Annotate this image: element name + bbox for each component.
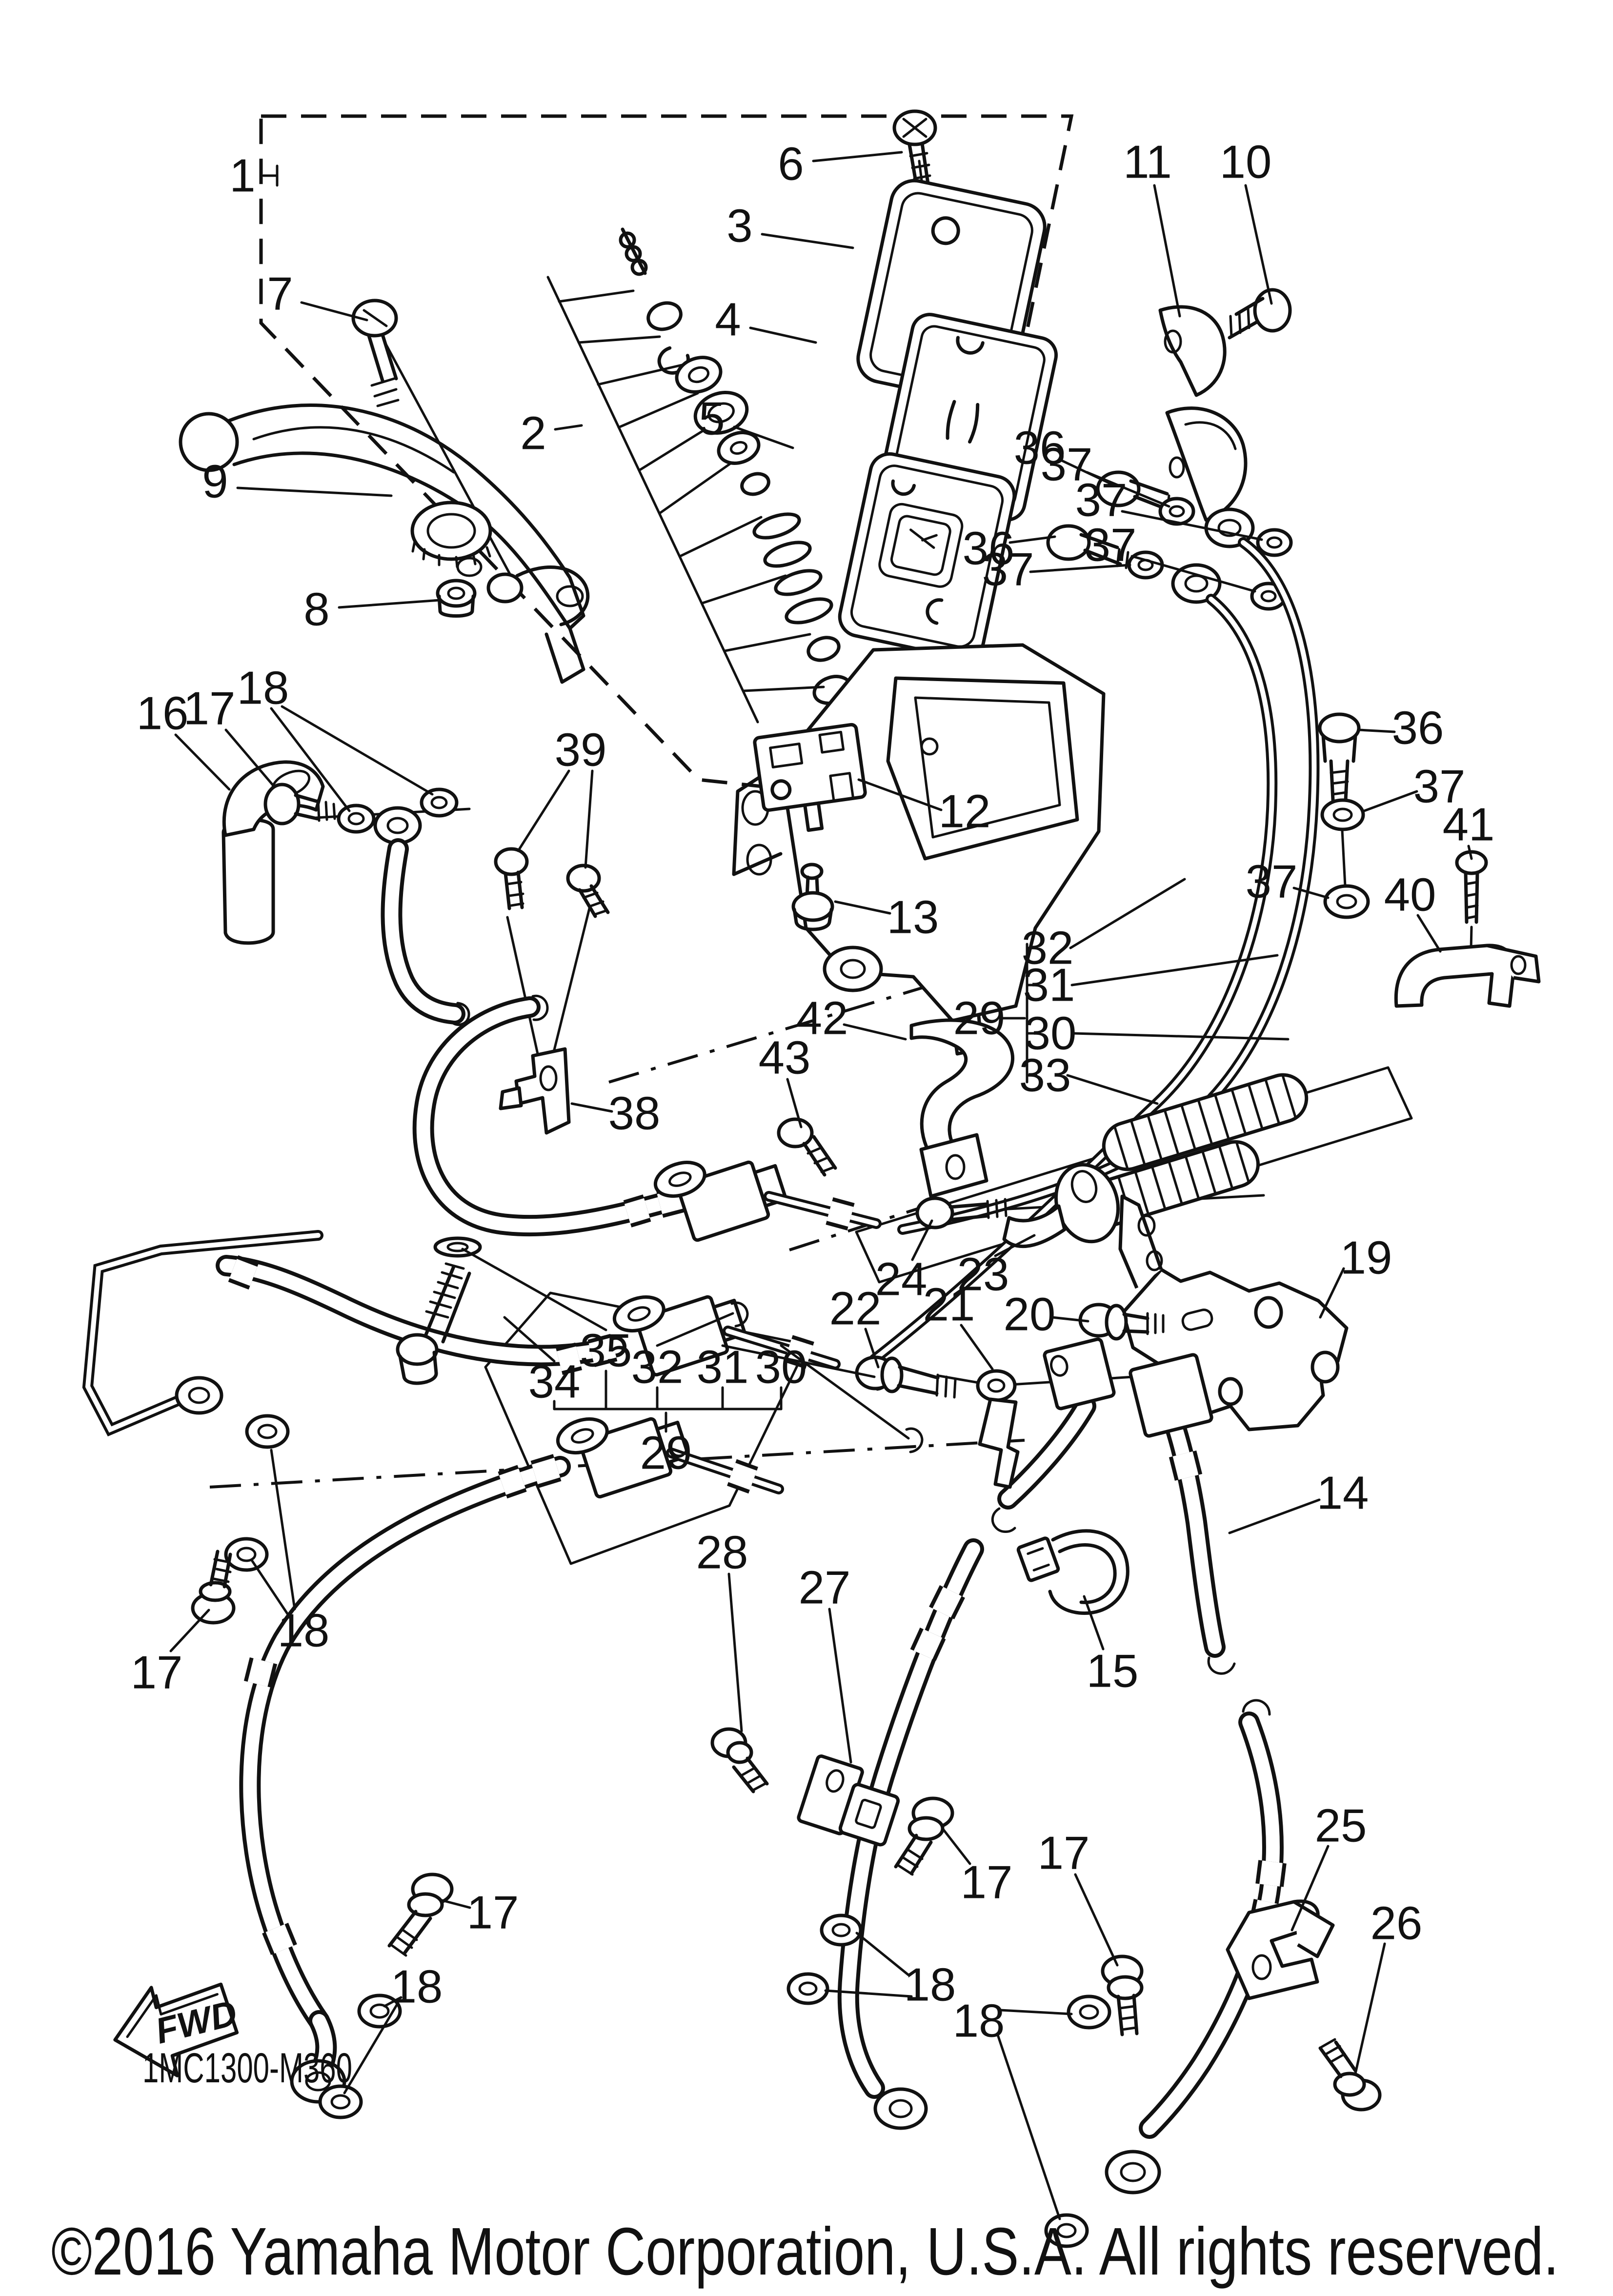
- screws-39: [496, 849, 608, 916]
- callout-label-32: 32: [631, 1341, 684, 1393]
- handlebar-clamp: [1160, 307, 1246, 520]
- callout-label-35: 35: [580, 1325, 632, 1377]
- callout-label-17: 17: [183, 683, 236, 735]
- callout-label-37: 37: [982, 544, 1034, 596]
- leader-line: [442, 1900, 470, 1908]
- hose-14: [1107, 1417, 1273, 2193]
- leader-line: [1072, 955, 1277, 985]
- callout-label-41: 41: [1443, 799, 1495, 851]
- callout-label-1: 1: [229, 150, 255, 202]
- callout-label-30: 30: [755, 1341, 807, 1393]
- callout-label-3: 3: [726, 200, 752, 252]
- callout-label-17: 17: [467, 1887, 519, 1939]
- callout-label-32: 32: [1022, 922, 1074, 974]
- copyright: ©2016 Yamaha Motor Corporation, U.S.A. A…: [51, 2214, 1559, 2289]
- leader-line: [844, 1025, 906, 1039]
- leader-line: [463, 1249, 606, 1330]
- washers-18a: [339, 789, 457, 843]
- callout-label-13: 13: [887, 891, 939, 944]
- bolt-17c: [389, 1874, 452, 1955]
- piston-kit: [548, 229, 854, 722]
- callout-label-17: 17: [131, 1647, 183, 1699]
- clamp-38: [501, 1049, 569, 1133]
- callout-label-29: 29: [640, 1427, 692, 1479]
- leader-line: [1364, 791, 1417, 811]
- leader-line: [961, 1325, 992, 1369]
- lever-nut-8: [438, 581, 475, 616]
- callout-label-20: 20: [1004, 1289, 1056, 1341]
- callout-label-7: 7: [267, 268, 293, 320]
- callout-label-36: 36: [1392, 702, 1444, 754]
- callout-label-9: 9: [202, 456, 228, 508]
- callout-label-18: 18: [237, 662, 289, 714]
- leader-line: [271, 1450, 295, 1609]
- leader-line: [171, 1610, 209, 1651]
- leader-line: [997, 2034, 1060, 2219]
- bolt-43: [779, 1119, 835, 1175]
- leader-line: [750, 328, 816, 342]
- leader-line: [1070, 879, 1185, 948]
- fwd-label: FWD: [151, 1992, 241, 2051]
- callout-label-28: 28: [696, 1527, 748, 1579]
- callout-label-10: 10: [1220, 136, 1272, 188]
- callout-label-18: 18: [278, 1605, 330, 1657]
- callout-label-2: 2: [520, 407, 546, 460]
- callout-label-27: 27: [799, 1562, 851, 1614]
- callout-label-12: 12: [939, 785, 991, 838]
- clamp-25: [1228, 1901, 1333, 1998]
- leader-line: [1068, 1075, 1157, 1104]
- footer: 1MC1300-M360 ©2016 Yamaha Motor Corporat…: [51, 2045, 1559, 2289]
- callout-label-18: 18: [391, 1961, 443, 2013]
- leader-line: [813, 152, 902, 161]
- callout-label-40: 40: [1384, 869, 1436, 921]
- callout-label-22: 22: [829, 1283, 882, 1335]
- callout-label-37: 37: [1246, 856, 1298, 908]
- callout-label-6: 6: [778, 138, 804, 190]
- callout-label-5: 5: [699, 393, 725, 445]
- leader-line: [1246, 185, 1271, 303]
- leader-line: [1154, 185, 1180, 316]
- leader-line: [555, 425, 582, 429]
- leader-line: [829, 1609, 851, 1762]
- callout-label-14: 14: [1317, 1467, 1369, 1519]
- leader-line: [339, 600, 440, 607]
- callout-label-24: 24: [875, 1253, 927, 1306]
- bolt-34-washer-35: [398, 1238, 480, 1383]
- callout-label-37: 37: [1075, 474, 1128, 526]
- clamp-21: [978, 1371, 1018, 1487]
- callout-label-25: 25: [1315, 1800, 1367, 1852]
- clamp-bolt-10: [1230, 290, 1290, 338]
- callout-label-33: 33: [1019, 1049, 1071, 1102]
- bolt-28: [712, 1729, 767, 1792]
- banjo-bolt-17b: [193, 1551, 234, 1623]
- part-code: 1MC1300-M360: [142, 2045, 352, 2092]
- callout-label-39: 39: [555, 724, 607, 776]
- callout-label-38: 38: [608, 1088, 661, 1140]
- callout-label-17: 17: [1038, 1827, 1090, 1879]
- leader-line: [1359, 730, 1394, 732]
- callout-label-29: 29: [953, 992, 1006, 1045]
- callout-label-23: 23: [957, 1249, 1009, 1301]
- leader-line: [585, 771, 592, 867]
- bolt-26: [1320, 2039, 1380, 2110]
- callout-label-15: 15: [1087, 1645, 1139, 1697]
- leader-line: [762, 234, 853, 248]
- band-clip-15: [1018, 1531, 1128, 1613]
- leader-line: [1075, 1874, 1117, 1965]
- callout-label-18: 18: [904, 1959, 956, 2011]
- leader-line: [176, 735, 229, 789]
- callout-label-19: 19: [1340, 1232, 1392, 1284]
- callout-label-11: 11: [1123, 136, 1172, 188]
- leader-line: [1000, 2010, 1071, 2014]
- bolt-41: [1457, 852, 1486, 922]
- bolt-17e: [1103, 1956, 1142, 2034]
- leader-line: [1355, 1944, 1385, 2074]
- exploded-parts-diagram: FWD 1MC1300-M360 ©2016 Yamaha Motor Corp…: [0, 0, 1613, 2296]
- hose-16-short: [391, 849, 469, 1025]
- callout-label-26: 26: [1371, 1897, 1423, 1950]
- leader-line: [857, 1933, 908, 1975]
- callout-label-34: 34: [528, 1356, 581, 1408]
- clamp-42: [911, 1020, 1013, 1196]
- bolt-17d: [896, 1798, 952, 1874]
- leader-line: [1230, 1500, 1319, 1533]
- leader-line: [1084, 1596, 1103, 1649]
- leader-line: [238, 488, 391, 496]
- leader-line: [518, 771, 569, 851]
- callout-label-16: 16: [137, 687, 189, 740]
- leader-line: [572, 1104, 612, 1111]
- metal-pipe-left: [88, 1235, 318, 1430]
- parts-diagram-page: FWD 1MC1300-M360 ©2016 Yamaha Motor Corp…: [0, 0, 1613, 2296]
- pipe-clamp-40: [1396, 946, 1539, 1006]
- callout-label-17: 17: [961, 1856, 1013, 1909]
- callout-label-18: 18: [953, 1995, 1005, 2047]
- callout-label-8: 8: [303, 584, 329, 636]
- callout-label-4: 4: [715, 294, 741, 346]
- callout-label-31: 31: [697, 1341, 749, 1393]
- leader-line: [729, 1574, 742, 1731]
- callout-label-37: 37: [1085, 519, 1137, 571]
- reservoir-cap-screw: [894, 111, 935, 184]
- callout-label-43: 43: [759, 1032, 811, 1084]
